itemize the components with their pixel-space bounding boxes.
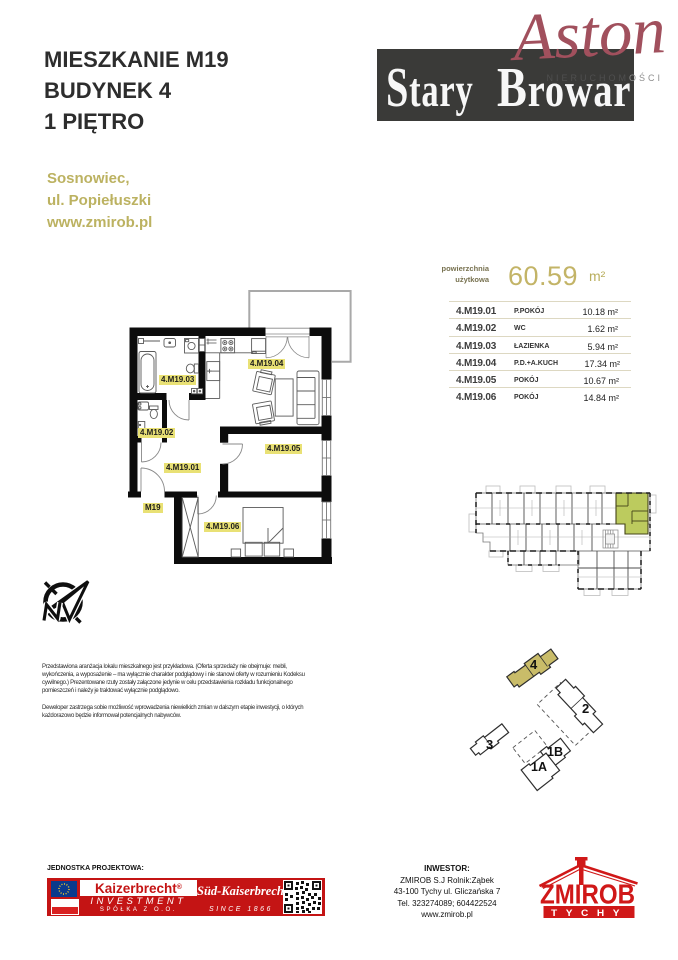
svg-text:1A: 1A — [531, 760, 547, 774]
svg-text:1B: 1B — [547, 745, 563, 759]
svg-text:ZMIROB: ZMIROB — [540, 879, 635, 910]
svg-text:3: 3 — [486, 737, 493, 752]
svg-text:4: 4 — [530, 657, 538, 672]
svg-text:2: 2 — [582, 701, 589, 716]
svg-text:TYCHY: TYCHY — [551, 908, 628, 919]
